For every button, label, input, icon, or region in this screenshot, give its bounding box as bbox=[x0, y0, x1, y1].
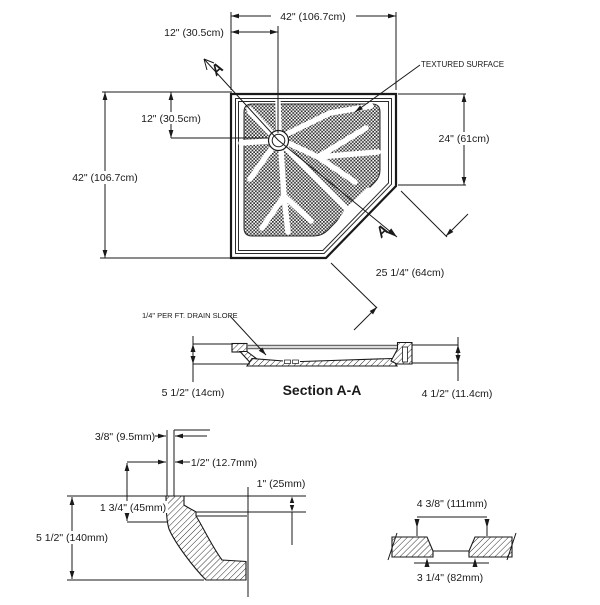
dim-drain-offset-top-label: 12" (30.5cm) bbox=[164, 27, 224, 39]
dim-diagonal-label: 25 1/4" (64cm) bbox=[376, 267, 445, 279]
section-view: 1/4" PER FT. DRAIN SLOPE 5 1/2" (14cm) S… bbox=[142, 311, 492, 400]
dim-drain-offset-left-label: 12" (30.5cm) bbox=[141, 113, 201, 125]
dim-section-right-label: 4 1/2" (11.4cm) bbox=[422, 388, 493, 400]
dim-wall-thickness-label: 1/2" (12.7mm) bbox=[191, 457, 257, 469]
dim-ledge-depth-label: 1" (25mm) bbox=[257, 478, 306, 490]
textured-surface-label: TEXTURED SURFACE bbox=[421, 60, 504, 69]
dim-top-width-label: 42" (106.7cm) bbox=[280, 11, 346, 23]
dim-left-height-label: 42" (106.7cm) bbox=[72, 172, 138, 184]
section-floor bbox=[247, 359, 397, 367]
plan-view: A A 42" (106.7cm) 12" (30.5cm) TEXTURED … bbox=[69, 10, 504, 330]
dim-lip-thickness-label: 3/8" (9.5mm) bbox=[95, 431, 155, 443]
shower-base-spec-sheet: A A 42" (106.7cm) 12" (30.5cm) TEXTURED … bbox=[0, 0, 600, 600]
drain-flange-left bbox=[392, 537, 433, 557]
section-title: Section A-A bbox=[283, 382, 362, 398]
section-left-lip bbox=[232, 344, 247, 353]
drain-flange-right bbox=[469, 537, 512, 557]
dim-drain-inner-width-label: 3 1/4" (82mm) bbox=[417, 572, 483, 584]
edge-wall-section bbox=[166, 496, 246, 580]
drain-detail-view: 4 3/8" (111mm) 3 1/4" (82mm) bbox=[388, 498, 516, 584]
dim-drain-outer-width-label: 4 3/8" (111mm) bbox=[417, 498, 487, 510]
dim-right-height-label: 24" (61cm) bbox=[439, 133, 490, 145]
drain-slope-note: 1/4" PER FT. DRAIN SLOPE bbox=[142, 311, 238, 320]
edge-detail-view: 3/8" (9.5mm) 1/2" (12.7mm) 1" (25mm) 1 3… bbox=[35, 430, 306, 597]
technical-drawing: A A 42" (106.7cm) 12" (30.5cm) TEXTURED … bbox=[0, 0, 600, 600]
section-marker-a-top: A bbox=[207, 59, 227, 80]
dim-overall-height-label: 5 1/2" (140mm) bbox=[36, 532, 108, 544]
dim-section-left-label: 5 1/2" (14cm) bbox=[162, 387, 225, 399]
section-marker-a-bottom: A bbox=[372, 221, 392, 242]
dim-flange-height-label: 1 3/4" (45mm) bbox=[100, 502, 166, 514]
